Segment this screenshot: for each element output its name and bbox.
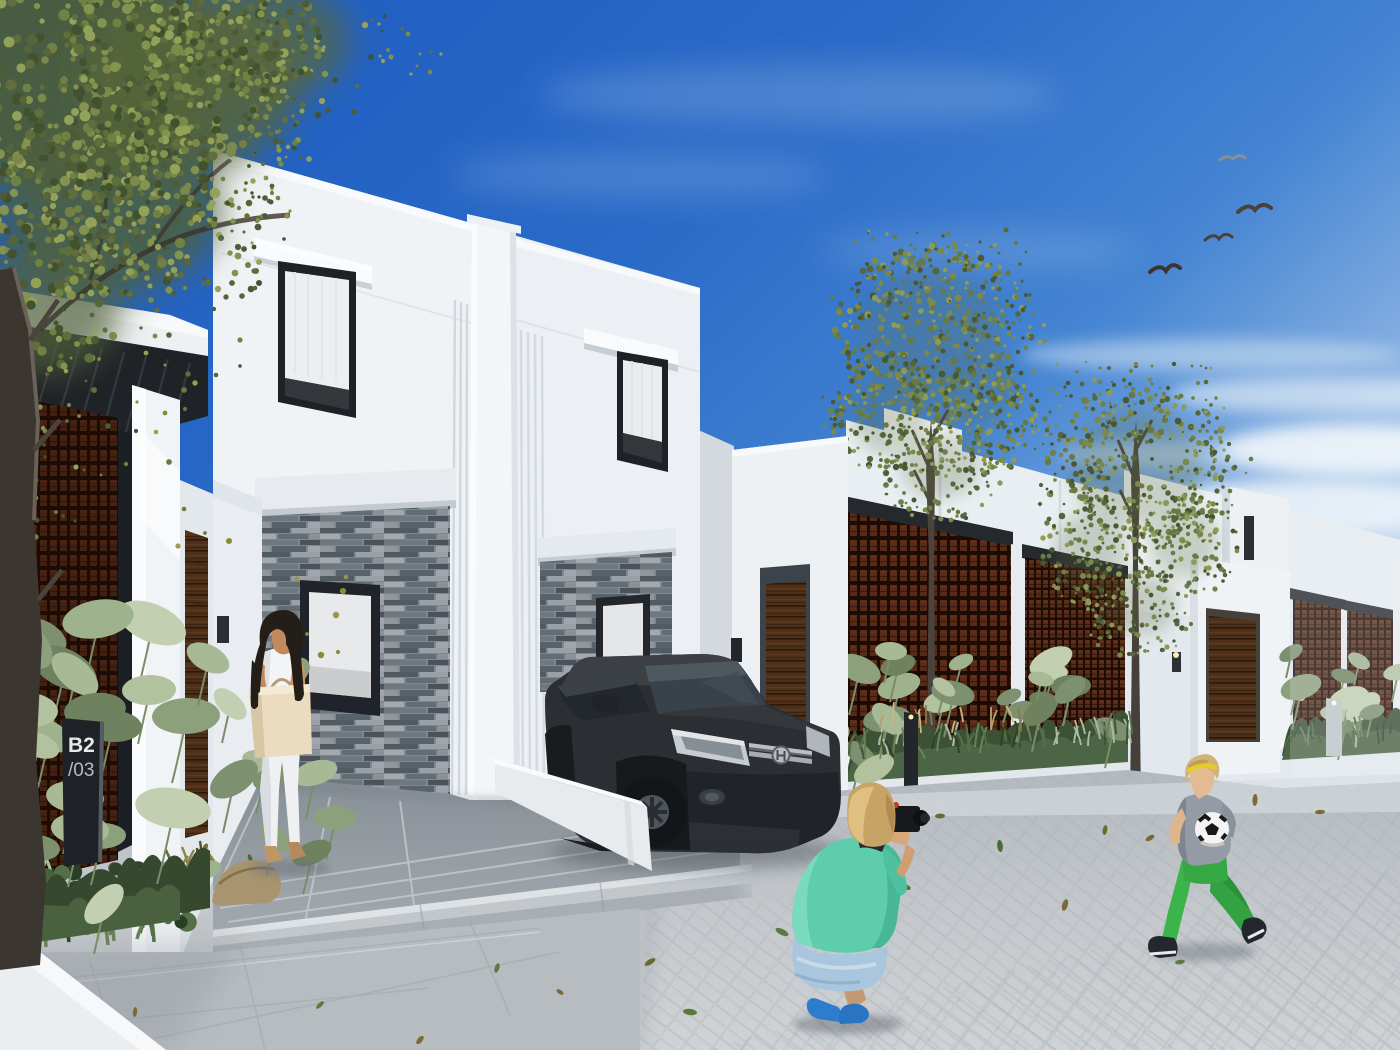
- svg-text:/03: /03: [68, 760, 94, 781]
- svg-text:B2: B2: [68, 734, 95, 757]
